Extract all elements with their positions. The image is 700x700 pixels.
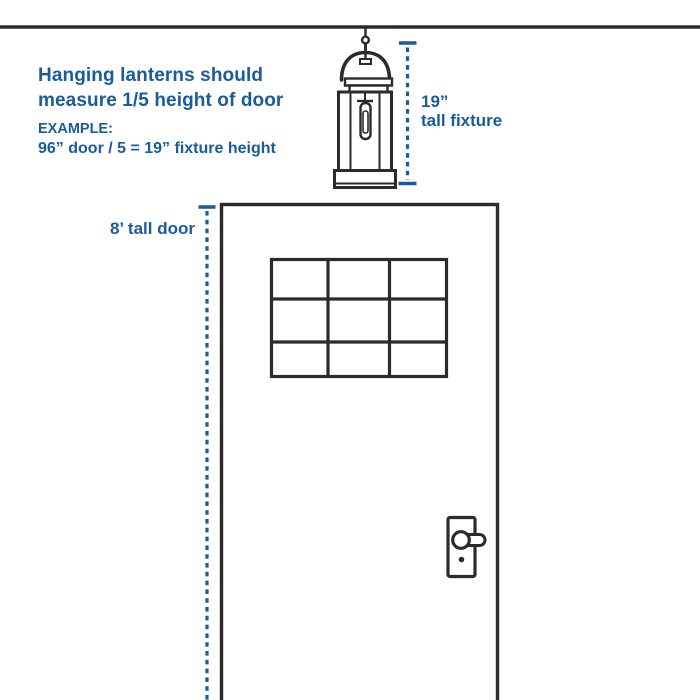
handle-lever-hub: [453, 532, 470, 549]
handle-keyhole-dot: [459, 557, 465, 563]
door-measure-label: 8’ tall door: [55, 219, 195, 238]
fixture-measure-caption: tall fixture: [421, 111, 502, 130]
example-text: EXAMPLE: 96” door / 5 = 19” fixture heig…: [38, 121, 276, 158]
fixture-height-measure: [399, 43, 417, 184]
fixture-measure-value: 19”: [421, 92, 502, 111]
door-height-measure: [199, 207, 216, 700]
door-outline: [222, 205, 498, 700]
lantern-collar: [360, 59, 371, 64]
door-drawing: [222, 205, 498, 700]
lantern-base: [335, 171, 396, 188]
guideline-line-2: measure 1/5 height of door: [38, 88, 283, 113]
guideline-line-1: Hanging lanterns should: [38, 63, 283, 88]
diagram-canvas: Hanging lanterns should measure 1/5 heig…: [0, 0, 700, 700]
lantern-finial-ball: [362, 37, 369, 44]
door-handle: [448, 518, 485, 577]
example-label: EXAMPLE:: [38, 121, 276, 137]
door-window-grid: [272, 260, 447, 377]
example-formula: 96” door / 5 = 19” fixture height: [38, 140, 276, 158]
fixture-measure-label: 19” tall fixture: [421, 92, 502, 130]
hanging-lantern-drawing: [335, 28, 396, 188]
guideline-text: Hanging lanterns should measure 1/5 heig…: [38, 63, 283, 113]
window-grid-frame: [272, 260, 447, 377]
